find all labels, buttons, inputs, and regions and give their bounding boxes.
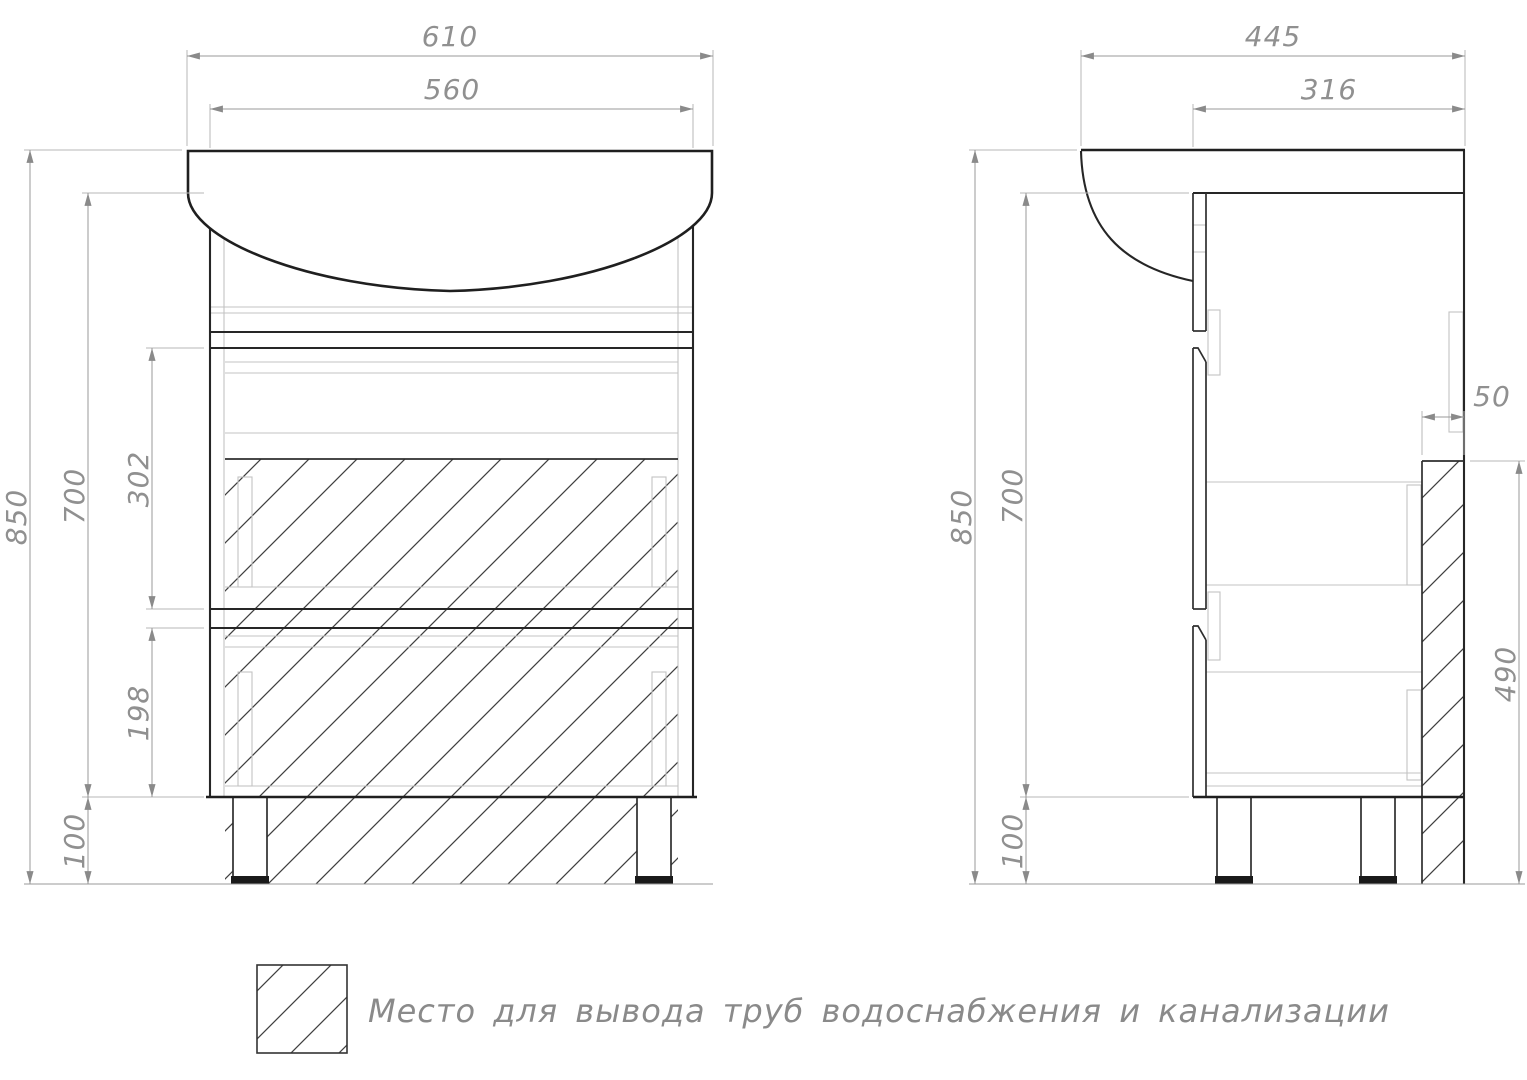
drawing-svg: 610 560 850 700 302 198 100 [0,0,1527,1080]
dim-front-legs-height: 100 [58,813,91,869]
side-view [1081,150,1465,884]
front-washbasin [188,151,712,291]
dim-side-pipe-zone-depth: 50 [1473,380,1511,413]
legend-label: Место для вывода труб водоснабжения и ка… [368,992,1390,1030]
side-washbasin [1081,150,1465,281]
dim-side-cabinet-depth: 316 [1301,73,1357,106]
side-pipe-zone-hatch [1422,461,1464,884]
dim-front-total-height: 850 [0,489,33,545]
dim-front-total-width: 610 [422,20,478,53]
dim-front-upper-drawer: 302 [122,451,155,507]
dim-front-cabinet-width: 560 [424,73,480,106]
side-legs [1215,797,1397,884]
dim-front-lower-drawer: 198 [122,685,155,741]
dim-side-total-height: 850 [945,489,978,545]
dim-side-legs-height: 100 [996,813,1029,869]
legend: Место для вывода труб водоснабжения и ка… [257,965,1390,1053]
dim-front-cabinet-height: 700 [58,468,91,524]
legend-hatch-swatch [257,965,347,1053]
front-view [188,151,712,884]
dim-side-pipe-zone-height: 490 [1489,646,1522,702]
dim-side-cabinet-height: 700 [996,468,1029,524]
vanity-technical-drawing: 610 560 850 700 302 198 100 [0,0,1527,1080]
front-pipe-zone-hatch [225,459,678,884]
dim-side-total-depth: 445 [1245,20,1301,53]
